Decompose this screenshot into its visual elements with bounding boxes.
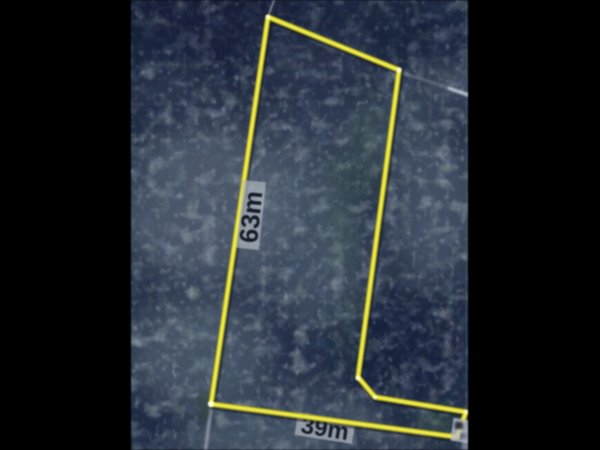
svg-text:63m: 63m: [233, 190, 268, 245]
